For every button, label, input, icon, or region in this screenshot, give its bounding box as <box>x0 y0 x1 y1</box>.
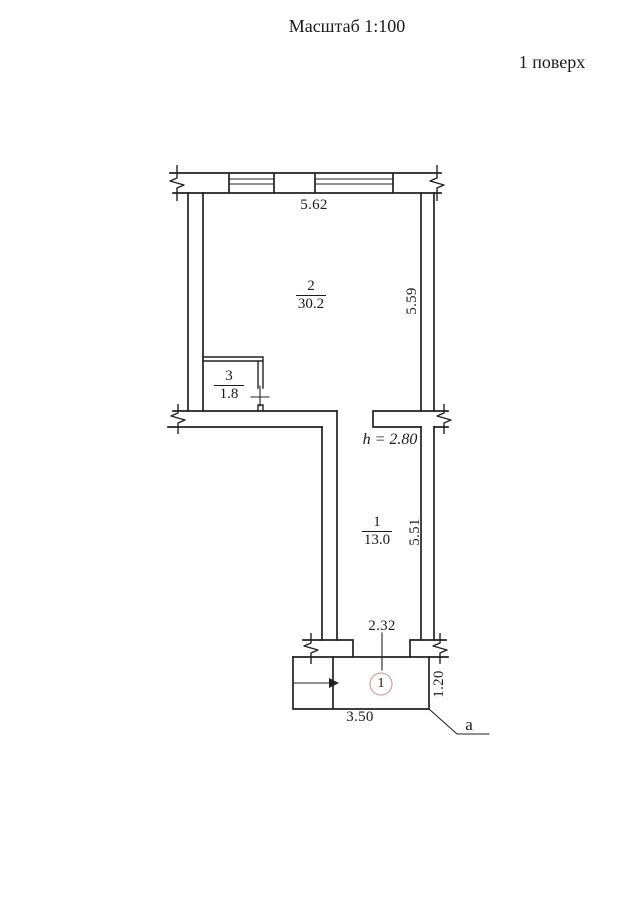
floor-plan-page: Масштаб 1:100 1 поверх 5.62 5.59 5.51 2.… <box>0 0 643 900</box>
room-area: 13.0 <box>351 532 403 548</box>
dimension-door-opening: 2.32 <box>351 618 413 635</box>
section-letter: а <box>455 715 483 735</box>
top-wall <box>170 173 441 193</box>
room-number: 2 <box>296 279 326 296</box>
bottom-wall <box>293 640 448 657</box>
room-area: 30.2 <box>285 296 337 312</box>
scale-title: Масштаб 1:100 <box>247 16 447 37</box>
wall-break-icon <box>437 404 451 434</box>
floor-title: 1 поверх <box>487 52 617 73</box>
middle-wall-right <box>373 411 448 427</box>
room-label-1: 1 13.0 <box>351 515 403 548</box>
room-label-2: 2 30.2 <box>285 279 337 312</box>
dimension-room1-depth: 5.51 <box>407 502 423 562</box>
right-wall-upper <box>421 193 434 411</box>
room-number: 1 <box>362 515 392 532</box>
dimension-porch-depth: 1.20 <box>431 654 447 714</box>
room-area: 1.8 <box>203 386 255 402</box>
room-label-3: 3 1.8 <box>203 369 255 402</box>
dimension-room2-depth: 5.59 <box>404 271 420 331</box>
middle-wall-left <box>168 411 337 427</box>
wall-break-icons <box>170 165 451 664</box>
room-number: 3 <box>214 369 244 386</box>
floor-plan-drawing <box>0 0 643 900</box>
wall-break-icon <box>304 633 318 664</box>
dimension-porch-width: 3.50 <box>329 709 391 726</box>
ceiling-height-note: h = 2.80 <box>338 431 442 449</box>
window-glazing-icon <box>229 179 393 184</box>
entrance-arrow-icon <box>329 678 339 688</box>
detail-lines <box>229 179 489 734</box>
wall-break-icon <box>170 165 184 201</box>
wall-break-icon <box>171 404 185 434</box>
entrance-marker-number: 1 <box>371 676 391 692</box>
corridor-left-wall <box>322 411 337 640</box>
wall-break-icon <box>430 165 444 201</box>
dimension-top-width: 5.62 <box>283 197 345 214</box>
left-wall <box>188 193 203 411</box>
